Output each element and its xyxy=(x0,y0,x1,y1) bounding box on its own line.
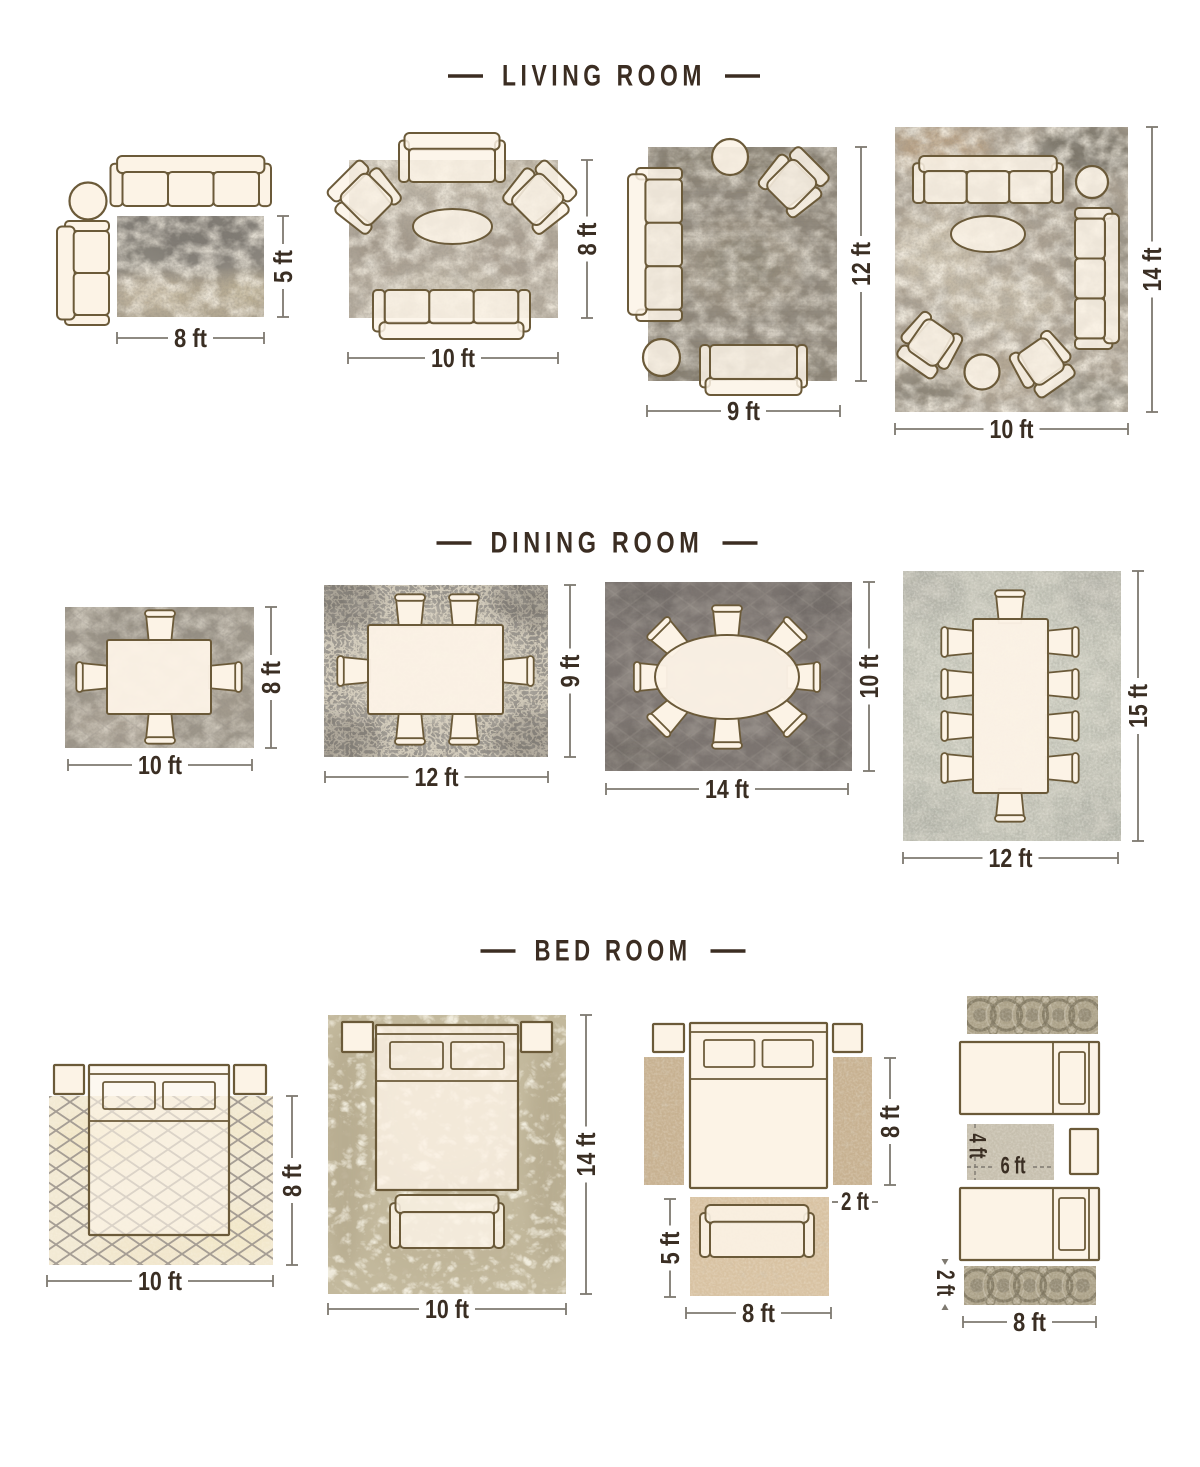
svg-text:8 ft: 8 ft xyxy=(256,661,286,694)
svg-text:15 ft: 15 ft xyxy=(1123,684,1153,728)
svg-text:10 ft: 10 ft xyxy=(138,1266,182,1296)
svg-text:10 ft: 10 ft xyxy=(990,414,1034,444)
svg-text:2 ft: 2 ft xyxy=(931,1270,959,1296)
svg-text:LIVING ROOM: LIVING ROOM xyxy=(502,60,706,93)
svg-text:DINING ROOM: DINING ROOM xyxy=(491,527,704,560)
svg-text:8 ft: 8 ft xyxy=(742,1298,775,1328)
svg-text:5 ft: 5 ft xyxy=(268,250,298,283)
svg-text:12 ft: 12 ft xyxy=(415,762,459,792)
svg-text:10 ft: 10 ft xyxy=(425,1294,469,1324)
svg-text:10 ft: 10 ft xyxy=(431,343,475,373)
svg-text:8 ft: 8 ft xyxy=(1013,1307,1046,1337)
svg-text:9 ft: 9 ft xyxy=(727,396,760,426)
svg-text:6 ft: 6 ft xyxy=(1001,1153,1026,1180)
svg-text:10 ft: 10 ft xyxy=(138,750,182,780)
svg-text:2 ft: 2 ft xyxy=(841,1188,870,1216)
svg-text:8 ft: 8 ft xyxy=(174,323,207,353)
svg-text:8 ft: 8 ft xyxy=(572,222,602,255)
svg-text:14 ft: 14 ft xyxy=(705,774,749,804)
svg-text:14 ft: 14 ft xyxy=(571,1132,601,1176)
svg-text:8 ft: 8 ft xyxy=(277,1164,307,1197)
svg-text:12 ft: 12 ft xyxy=(989,843,1033,873)
svg-text:5 ft: 5 ft xyxy=(655,1231,685,1264)
svg-text:4 ft: 4 ft xyxy=(964,1134,991,1159)
svg-text:14 ft: 14 ft xyxy=(1137,247,1167,291)
svg-text:8 ft: 8 ft xyxy=(875,1105,905,1138)
svg-text:9 ft: 9 ft xyxy=(555,654,585,687)
svg-text:10 ft: 10 ft xyxy=(854,654,884,698)
svg-text:12 ft: 12 ft xyxy=(846,242,876,286)
svg-text:BED ROOM: BED ROOM xyxy=(535,935,692,968)
